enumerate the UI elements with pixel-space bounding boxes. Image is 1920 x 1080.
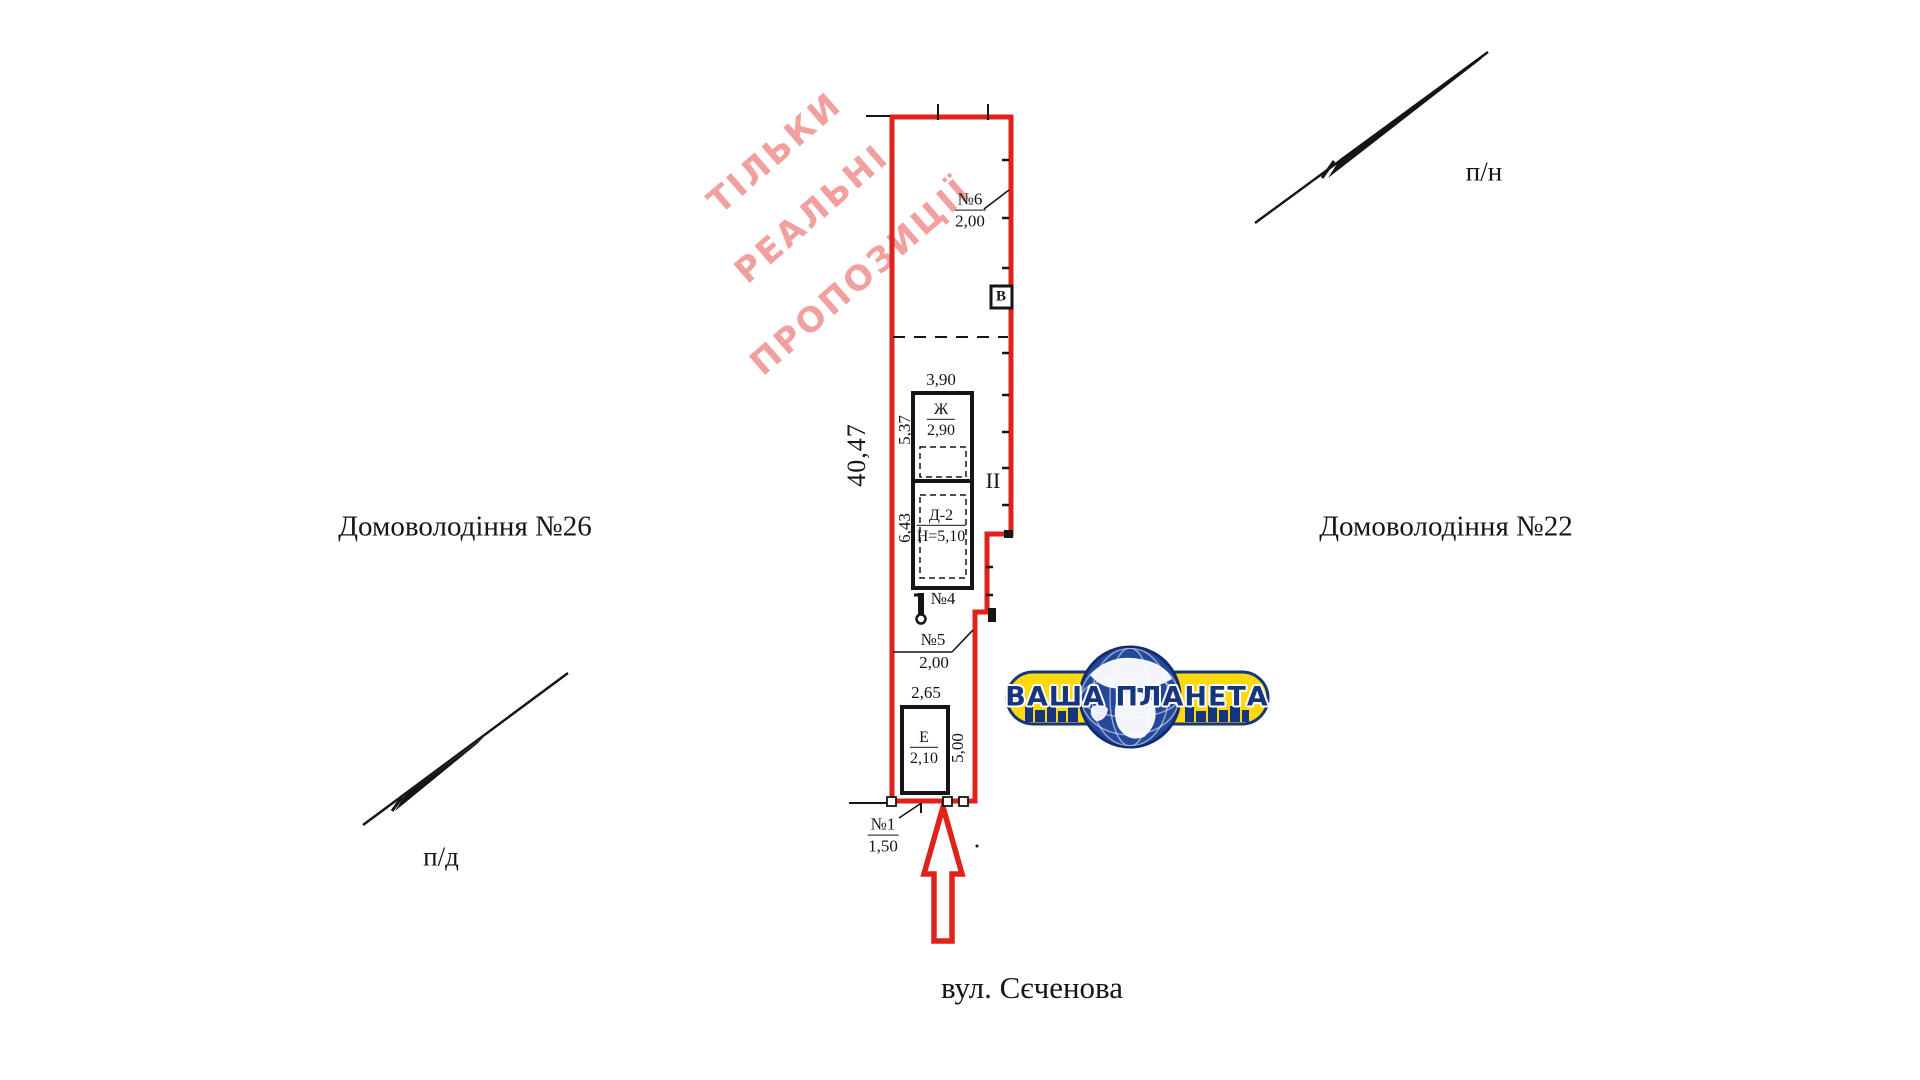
building-e-dim: 2,10 (910, 748, 938, 768)
building-zh-label: Ж 2,90 (927, 400, 955, 440)
building-e-label: Е 2,10 (910, 728, 938, 768)
building-d2-dim: Н=5,10 (917, 526, 966, 546)
point-5-value: 2,00 (919, 653, 949, 673)
leader-lines (899, 190, 1009, 818)
point-6-label: №6 2,00 (955, 190, 986, 233)
building-zh-letter: Ж (927, 400, 955, 420)
point-1-label: №1 1,50 (868, 815, 899, 858)
point-4-number: №4 (931, 589, 956, 609)
well-label: В (996, 289, 1006, 306)
section-label: II (986, 468, 1001, 494)
hydrant-icon (914, 593, 926, 624)
point-1-value: 1,50 (868, 836, 899, 857)
dim-500: 5,00 (948, 733, 968, 763)
dim-overall-length: 40,47 (842, 423, 872, 487)
watermark-line-3: ПРОПОЗИЦІЇ (743, 170, 980, 383)
stray-dot (976, 845, 979, 848)
dim-265: 2,65 (911, 683, 941, 703)
boundary-markers (887, 797, 968, 806)
south-label: п/д (423, 842, 459, 873)
entrance-arrow (924, 807, 962, 941)
agency-logo-name: ВАША ПЛАНЕТА (1005, 682, 1268, 713)
building-zh-dim: 2,90 (927, 420, 955, 440)
point-1-number: №1 (868, 815, 899, 836)
dim-643: 6,43 (895, 513, 915, 543)
building-d2-label: Д-2 Н=5,10 (917, 506, 966, 546)
building-d2-letter: Д-2 (917, 506, 966, 526)
street-label: вул. Сєченова (941, 970, 1123, 1006)
step-corner-2 (988, 608, 996, 622)
left-property-label: Домоволодіння №26 (338, 511, 591, 544)
site-plan-page: ТІЛЬКИ РЕАЛЬНІ ПРОПОЗИЦІЇ (0, 0, 1920, 1080)
dim-390: 3,90 (926, 370, 956, 390)
step-corner-1 (1004, 530, 1013, 538)
south-arrow-icon (363, 673, 568, 825)
north-arrow-icon (1255, 52, 1488, 223)
building-e-letter: Е (910, 728, 938, 748)
point-6-value: 2,00 (955, 211, 986, 232)
right-property-label: Домоволодіння №22 (1319, 511, 1572, 544)
point-5-number: №5 (921, 630, 946, 650)
dim-537: 5,37 (895, 415, 915, 445)
north-label: п/н (1466, 157, 1502, 188)
building-zh-annex (920, 447, 966, 477)
point-6-number: №6 (955, 190, 986, 211)
